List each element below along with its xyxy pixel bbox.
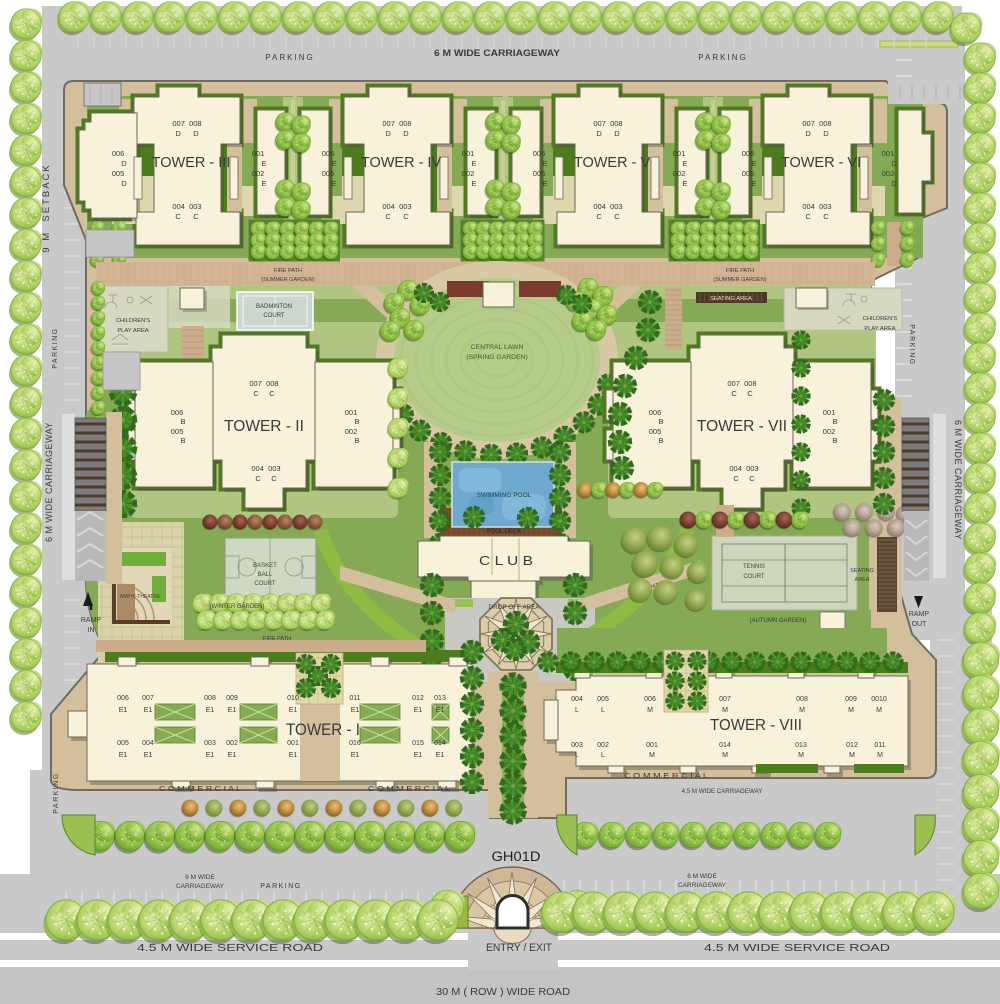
svg-text:D D: D D (805, 129, 829, 138)
svg-text:D D: D D (175, 129, 199, 138)
svg-text:30 M ( ROW ) WIDE ROAD: 30 M ( ROW ) WIDE ROAD (436, 986, 570, 998)
svg-text:L: L (601, 707, 605, 714)
svg-text:E: E (261, 159, 266, 168)
svg-text:(WINTER GARDEN): (WINTER GARDEN) (210, 604, 265, 610)
svg-text:E: E (751, 179, 756, 188)
svg-text:D: D (891, 179, 897, 188)
svg-text:4.5 M WIDE SERVICE ROAD: 4.5 M WIDE SERVICE ROAD (137, 943, 323, 954)
svg-text:001: 001 (287, 740, 299, 747)
svg-text:004: 004 (142, 740, 154, 747)
svg-text:002: 002 (673, 169, 686, 178)
svg-text:M: M (876, 707, 882, 714)
svg-text:C O M M E R C I A L: C O M M E R C I A L (368, 784, 450, 793)
svg-text:007: 007 (719, 696, 731, 703)
svg-text:006: 006 (322, 149, 335, 158)
svg-text:C C: C C (805, 212, 829, 221)
svg-text:TOWER - IV: TOWER - IV (361, 155, 442, 171)
svg-text:005: 005 (112, 169, 125, 178)
svg-text:COURT: COURT (263, 313, 285, 319)
svg-text:004 003: 004 003 (382, 202, 411, 211)
svg-text:016: 016 (349, 740, 361, 747)
svg-text:004 003: 004 003 (802, 202, 831, 211)
svg-text:D: D (121, 179, 127, 188)
svg-text:C L U B: C L U B (479, 554, 533, 568)
svg-text:COURT: COURT (254, 581, 276, 587)
svg-text:C C: C C (733, 474, 755, 483)
svg-text:CENTRAL LAWN: CENTRAL LAWN (471, 344, 524, 351)
svg-text:014: 014 (434, 740, 446, 747)
svg-text:004 003: 004 003 (593, 202, 622, 211)
svg-text:002: 002 (252, 169, 265, 178)
svg-text:002: 002 (597, 742, 609, 749)
svg-text:C C: C C (253, 389, 275, 398)
svg-text:E1: E1 (436, 752, 445, 759)
svg-text:RAMP: RAMP (81, 617, 102, 624)
svg-text:DROP OFF AREA: DROP OFF AREA (489, 604, 541, 611)
svg-text:007 008: 007 008 (172, 119, 201, 128)
svg-text:PARKING: PARKING (260, 883, 302, 890)
svg-text:009: 009 (226, 695, 238, 702)
svg-text:006: 006 (742, 149, 755, 158)
svg-text:006: 006 (112, 149, 125, 158)
svg-text:GH01D: GH01D (492, 849, 541, 864)
svg-text:003: 003 (571, 742, 583, 749)
svg-text:CARRIAGEWAY: CARRIAGEWAY (678, 882, 727, 889)
svg-text:COURT: COURT (743, 574, 765, 580)
svg-text:004 003: 004 003 (729, 464, 758, 473)
svg-text:012: 012 (846, 742, 858, 749)
svg-text:D D: D D (596, 129, 620, 138)
svg-text:SEATING: SEATING (850, 568, 874, 574)
svg-text:TOWER - VI: TOWER - VI (781, 155, 861, 171)
svg-text:TOWER - I: TOWER - I (286, 721, 360, 739)
svg-text:B: B (180, 436, 185, 445)
svg-text:D: D (891, 159, 897, 168)
svg-text:ENTRY / EXIT: ENTRY / EXIT (486, 942, 552, 954)
svg-text:E1: E1 (119, 707, 128, 714)
svg-text:C O M M E R C I A L: C O M M E R C I A L (624, 771, 708, 780)
svg-text:007 008: 007 008 (249, 379, 278, 388)
svg-text:OUT: OUT (912, 621, 928, 628)
svg-text:M: M (849, 752, 855, 759)
svg-text:005: 005 (649, 427, 662, 436)
svg-text:001: 001 (462, 149, 475, 158)
svg-text:6 M WIDE: 6 M WIDE (185, 874, 215, 881)
svg-text:AREA: AREA (855, 577, 870, 583)
svg-text:C C: C C (385, 212, 409, 221)
svg-text:C C: C C (596, 212, 620, 221)
svg-text:007: 007 (142, 695, 154, 702)
svg-text:011: 011 (349, 695, 360, 702)
svg-text:002: 002 (882, 169, 895, 178)
svg-text:B: B (180, 417, 185, 426)
svg-text:M: M (798, 752, 804, 759)
svg-text:002: 002 (226, 740, 238, 747)
svg-text:006: 006 (649, 408, 662, 417)
svg-text:E1: E1 (144, 752, 153, 759)
svg-text:B: B (832, 436, 837, 445)
svg-text:E: E (471, 179, 476, 188)
svg-text:001: 001 (823, 408, 836, 417)
svg-text:CARRIAGEWAY: CARRIAGEWAY (176, 883, 225, 890)
svg-text:B: B (658, 436, 663, 445)
svg-text:006: 006 (533, 149, 546, 158)
svg-text:M: M (877, 752, 883, 759)
svg-text:005: 005 (742, 169, 755, 178)
svg-text:004 003: 004 003 (251, 464, 280, 473)
svg-text:012: 012 (412, 695, 424, 702)
svg-text:001: 001 (646, 742, 658, 749)
svg-text:004 003: 004 003 (172, 202, 201, 211)
svg-text:007 008: 007 008 (593, 119, 622, 128)
svg-text:PARKING: PARKING (698, 53, 747, 62)
svg-text:M: M (722, 752, 728, 759)
svg-text:005: 005 (533, 169, 546, 178)
svg-text:002: 002 (345, 427, 358, 436)
svg-text:6 M WIDE CARRIAGEWAY: 6 M WIDE CARRIAGEWAY (953, 420, 963, 540)
svg-text:008: 008 (796, 696, 808, 703)
svg-text:B: B (658, 417, 663, 426)
svg-text:E: E (261, 179, 266, 188)
svg-text:RAMP: RAMP (909, 611, 930, 618)
svg-text:E: E (751, 159, 756, 168)
svg-text:M: M (848, 707, 854, 714)
svg-text:6 M WIDE: 6 M WIDE (687, 873, 717, 880)
svg-text:M: M (799, 707, 805, 714)
svg-text:POOL DECK: POOL DECK (487, 529, 522, 535)
svg-text:6 M WIDE CARRIAGEWAY: 6 M WIDE CARRIAGEWAY (44, 422, 54, 542)
svg-text:013: 013 (795, 742, 807, 749)
svg-text:BALL: BALL (258, 572, 273, 578)
svg-text:E1: E1 (206, 752, 215, 759)
svg-text:TOWER - VIII: TOWER - VIII (710, 717, 802, 734)
svg-text:CHILDREN'S: CHILDREN'S (863, 316, 898, 322)
svg-text:002: 002 (462, 169, 475, 178)
svg-text:E: E (331, 179, 336, 188)
svg-text:B: B (354, 436, 359, 445)
svg-text:002: 002 (823, 427, 836, 436)
svg-text:B: B (832, 417, 837, 426)
svg-text:007 008: 007 008 (802, 119, 831, 128)
svg-text:D: D (121, 159, 127, 168)
svg-text:005: 005 (171, 427, 184, 436)
svg-text:001: 001 (882, 149, 895, 158)
svg-text:001: 001 (345, 408, 358, 417)
svg-text:E1: E1 (144, 707, 153, 714)
svg-text:E1: E1 (289, 752, 298, 759)
svg-text:TENNIS: TENNIS (743, 564, 765, 570)
svg-text:PLAY AREA: PLAY AREA (864, 326, 895, 332)
svg-text:001: 001 (252, 149, 265, 158)
svg-text:0010: 0010 (871, 696, 887, 703)
svg-text:(SUMMER GARDEN): (SUMMER GARDEN) (261, 277, 314, 283)
svg-text:PARKING: PARKING (52, 327, 59, 369)
svg-text:007 008: 007 008 (727, 379, 756, 388)
svg-text:006: 006 (117, 695, 129, 702)
svg-text:E: E (471, 159, 476, 168)
svg-text:BASKET: BASKET (253, 563, 277, 569)
svg-text:E1: E1 (206, 707, 215, 714)
svg-text:011: 011 (874, 742, 885, 749)
svg-text:E1: E1 (119, 752, 128, 759)
svg-text:TOWER - VII: TOWER - VII (697, 418, 787, 435)
svg-text:E: E (542, 179, 547, 188)
svg-text:C C: C C (175, 212, 199, 221)
svg-text:E1: E1 (289, 707, 298, 714)
svg-text:006: 006 (644, 696, 656, 703)
svg-text:L: L (575, 707, 579, 714)
svg-text:E: E (682, 159, 687, 168)
svg-text:001: 001 (673, 149, 686, 158)
svg-text:FIRE PATH: FIRE PATH (274, 268, 302, 274)
svg-text:BADMINTON: BADMINTON (256, 304, 292, 310)
svg-text:C C: C C (731, 389, 753, 398)
svg-text:E1: E1 (228, 752, 237, 759)
svg-text:D D: D D (385, 129, 409, 138)
svg-text:009: 009 (845, 696, 857, 703)
svg-text:L: L (575, 752, 579, 759)
svg-text:SEATING AREA: SEATING AREA (710, 296, 752, 302)
svg-text:E1: E1 (414, 752, 423, 759)
svg-text:PARKING: PARKING (265, 53, 314, 62)
svg-text:M: M (647, 707, 653, 714)
svg-text:SWIMMING POOL: SWIMMING POOL (477, 492, 532, 499)
svg-text:E1: E1 (436, 707, 445, 714)
svg-text:TOWER - V: TOWER - V (574, 155, 651, 171)
svg-text:C C: C C (255, 474, 277, 483)
svg-text:006: 006 (171, 408, 184, 417)
svg-text:014: 014 (719, 742, 731, 749)
svg-text:E1: E1 (351, 707, 360, 714)
svg-text:E1: E1 (351, 752, 360, 759)
svg-text:PLAY AREA: PLAY AREA (117, 328, 148, 334)
svg-text:005: 005 (322, 169, 335, 178)
svg-text:FIRE PATH: FIRE PATH (726, 268, 754, 274)
svg-text:TOWER - III: TOWER - III (152, 155, 231, 171)
svg-text:L: L (601, 752, 605, 759)
svg-text:005: 005 (597, 696, 609, 703)
svg-text:M: M (649, 752, 655, 759)
svg-text:005: 005 (117, 740, 129, 747)
svg-text:(AUTUMN GARDEN): (AUTUMN GARDEN) (750, 618, 807, 624)
svg-text:007 008: 007 008 (382, 119, 411, 128)
svg-text:TOWER - II: TOWER - II (224, 418, 304, 435)
svg-text:4.5 M WIDE CARRIAGEWAY: 4.5 M WIDE CARRIAGEWAY (682, 788, 763, 795)
svg-text:AMPHI-THEATRE: AMPHI-THEATRE (120, 594, 161, 600)
svg-text:IN: IN (88, 627, 95, 634)
svg-text:003: 003 (204, 740, 216, 747)
svg-text:4.5 M WIDE SERVICE ROAD: 4.5 M WIDE SERVICE ROAD (704, 943, 890, 954)
svg-text:E1: E1 (414, 707, 423, 714)
svg-text:(SUMMER GARDEN): (SUMMER GARDEN) (713, 277, 766, 283)
svg-text:015: 015 (412, 740, 424, 747)
svg-text:004: 004 (571, 696, 583, 703)
svg-text:C O M M E R C I A L: C O M M E R C I A L (159, 784, 241, 793)
svg-text:CHILDREN'S: CHILDREN'S (116, 318, 151, 324)
svg-text:010: 010 (287, 695, 299, 702)
svg-text:6 M WIDE CARRIAGEWAY: 6 M WIDE CARRIAGEWAY (434, 48, 561, 59)
svg-text:PARKING: PARKING (53, 772, 60, 814)
svg-text:E: E (682, 179, 687, 188)
svg-text:M: M (722, 707, 728, 714)
svg-text:E: E (542, 159, 547, 168)
svg-text:B: B (354, 417, 359, 426)
svg-text:E1: E1 (228, 707, 237, 714)
svg-text:008: 008 (204, 695, 216, 702)
svg-text:9 M SETBACK: 9 M SETBACK (41, 163, 52, 252)
svg-text:013: 013 (434, 695, 446, 702)
svg-text:PARKING: PARKING (908, 324, 915, 366)
svg-text:E: E (331, 159, 336, 168)
svg-text:(SPRING GARDEN): (SPRING GARDEN) (466, 354, 528, 361)
